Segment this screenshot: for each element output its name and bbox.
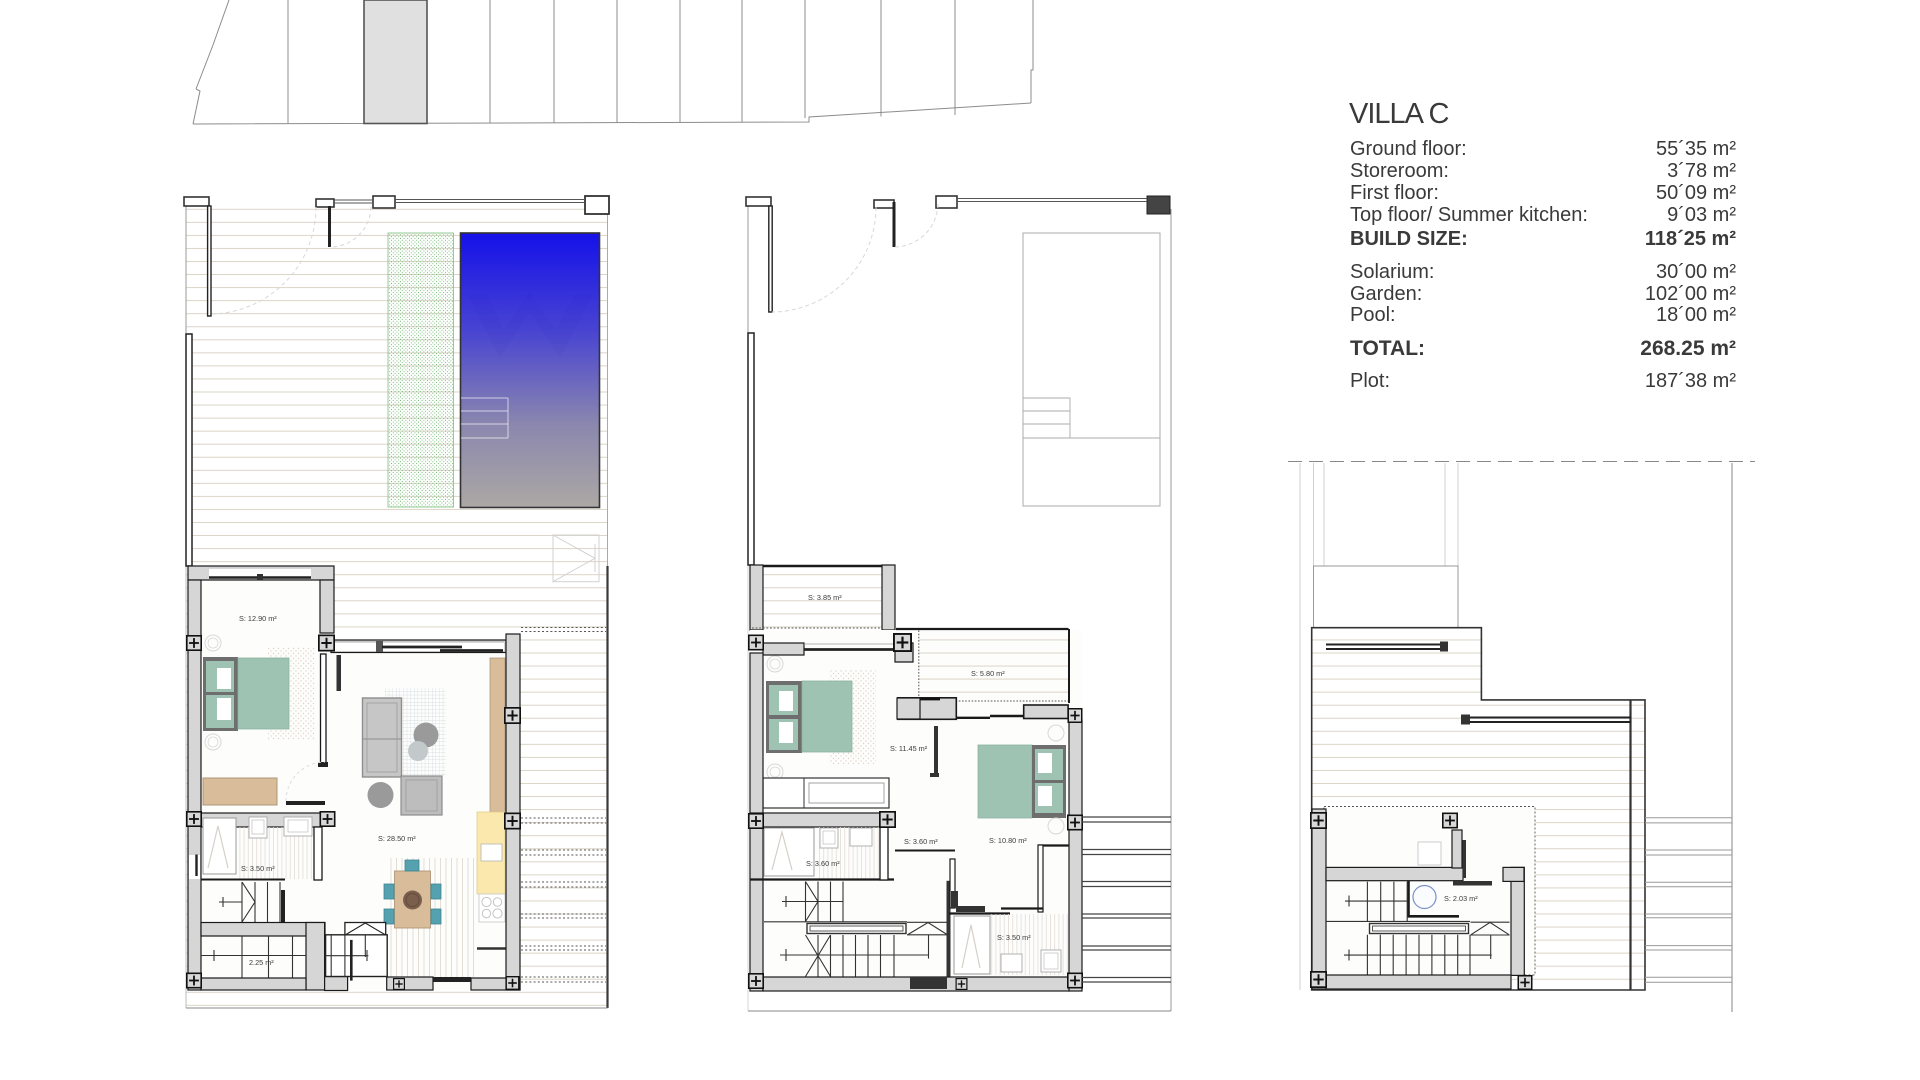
svg-text:55´35 m²: 55´35 m² <box>1656 138 1736 160</box>
svg-text:268.25 m²: 268.25 m² <box>1640 337 1736 360</box>
svg-text:S: 11.45 m²: S: 11.45 m² <box>890 744 928 753</box>
svg-text:Garden:: Garden: <box>1350 283 1422 305</box>
svg-text:S: 5.80 m²: S: 5.80 m² <box>971 669 1005 678</box>
svg-text:S: 3.60 m²: S: 3.60 m² <box>904 837 938 846</box>
svg-text:9´03 m²: 9´03 m² <box>1667 204 1736 226</box>
svg-text:BUILD SIZE:: BUILD SIZE: <box>1350 228 1468 250</box>
svg-text:30´00 m²: 30´00 m² <box>1656 261 1736 283</box>
svg-text:S: 2.03 m²: S: 2.03 m² <box>1444 894 1478 903</box>
svg-text:18´00 m²: 18´00 m² <box>1656 304 1736 326</box>
svg-text:S: 3.85 m²: S: 3.85 m² <box>808 593 842 602</box>
svg-text:Top floor/ Summer kitchen:: Top floor/ Summer kitchen: <box>1350 204 1588 226</box>
svg-text:Ground floor:: Ground floor: <box>1350 138 1467 160</box>
svg-text:50´09 m²: 50´09 m² <box>1656 182 1736 204</box>
svg-text:Plot:: Plot: <box>1350 370 1390 392</box>
svg-text:Pool:: Pool: <box>1350 304 1396 326</box>
svg-text:102´00 m²: 102´00 m² <box>1645 283 1736 305</box>
svg-text:S: 10.80 m²: S: 10.80 m² <box>989 836 1027 845</box>
svg-text:S: 3.50 m²: S: 3.50 m² <box>241 864 275 873</box>
svg-text:3´78 m²: 3´78 m² <box>1667 160 1736 182</box>
svg-text:First floor:: First floor: <box>1350 182 1439 204</box>
svg-text:S: 12.90 m²: S: 12.90 m² <box>239 614 277 623</box>
svg-text:187´38 m²: 187´38 m² <box>1645 370 1736 392</box>
svg-text:VILLA C: VILLA C <box>1349 98 1448 130</box>
svg-text:TOTAL:: TOTAL: <box>1350 337 1425 360</box>
svg-text:S: 3.50 m²: S: 3.50 m² <box>997 933 1031 942</box>
svg-text:Solarium:: Solarium: <box>1350 261 1434 283</box>
svg-text:2.25 m²: 2.25 m² <box>249 958 274 967</box>
svg-text:S: 28.50 m²: S: 28.50 m² <box>378 834 416 843</box>
svg-text:Storeroom:: Storeroom: <box>1350 160 1449 182</box>
svg-text:118´25 m²: 118´25 m² <box>1645 228 1737 250</box>
svg-text:S: 3.60 m²: S: 3.60 m² <box>806 859 840 868</box>
